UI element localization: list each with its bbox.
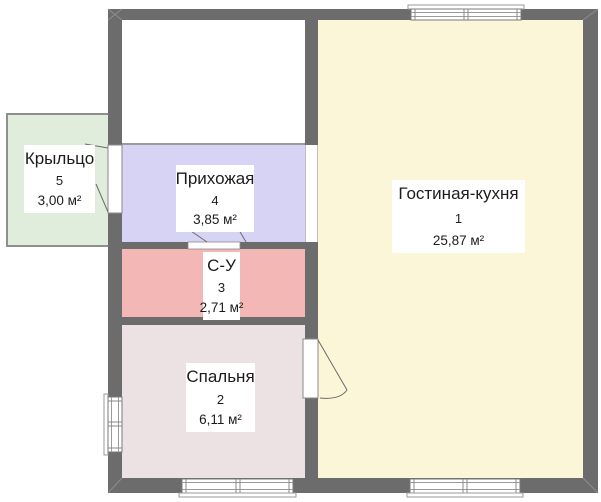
room-number: 5 bbox=[56, 174, 63, 187]
room-label-living: Гостиная-кухня 1 25,87 м² bbox=[392, 180, 525, 253]
wall-hallway-bathroom-right bbox=[240, 242, 305, 249]
wall-left bbox=[108, 9, 122, 493]
room-area: 3,00 м² bbox=[38, 194, 82, 208]
room-label-bathroom: С-У 3 2,71 м² bbox=[203, 252, 240, 320]
wall-right bbox=[583, 9, 598, 493]
room-label-bedroom: Спальня 2 6,11 м² bbox=[186, 363, 255, 432]
room-name: Прихожая bbox=[176, 170, 255, 188]
wall-hallway-bathroom-left bbox=[122, 242, 188, 249]
passage-hallway-living bbox=[305, 145, 318, 242]
room-area: 2,71 м² bbox=[200, 301, 244, 315]
wall-interior-vertical-lower bbox=[305, 398, 318, 478]
room-number: 2 bbox=[217, 393, 224, 406]
room-number: 4 bbox=[211, 194, 218, 207]
room-area: 3,85 м² bbox=[193, 213, 237, 227]
room-name: Крыльцо bbox=[25, 150, 94, 168]
room-number: 3 bbox=[218, 281, 225, 294]
room-name: С-У bbox=[207, 257, 236, 275]
room-number: 1 bbox=[455, 212, 462, 225]
wall-interior-vertical-upper bbox=[305, 9, 318, 145]
floor-plan: Гостиная-кухня 1 25,87 м² Спальня 2 6,11… bbox=[0, 0, 601, 502]
room-area: 6,11 м² bbox=[199, 413, 242, 427]
room-name: Спальня bbox=[186, 368, 254, 386]
room-area: 25,87 м² bbox=[433, 234, 484, 248]
wall-top bbox=[108, 9, 598, 20]
wall-bottom bbox=[108, 478, 598, 493]
room-name: Гостиная-кухня bbox=[398, 185, 518, 203]
room-unlabeled bbox=[122, 20, 305, 143]
room-label-porch: Крыльцо 5 3,00 м² bbox=[24, 145, 95, 213]
wall-interior-vertical-middle bbox=[305, 242, 318, 339]
room-label-hallway: Прихожая 4 3,85 м² bbox=[176, 165, 254, 232]
